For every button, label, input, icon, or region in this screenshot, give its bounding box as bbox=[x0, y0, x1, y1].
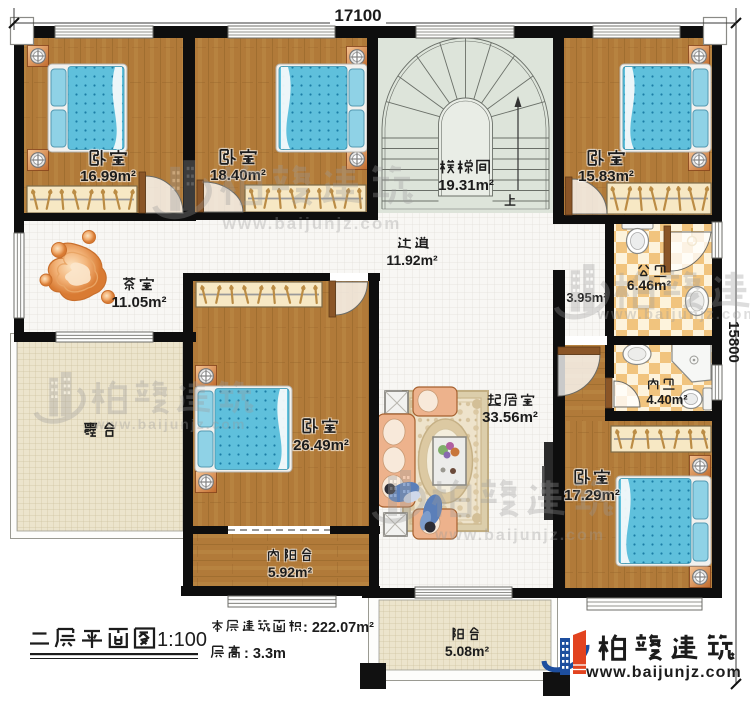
svg-text:4.40m²: 4.40m² bbox=[646, 392, 688, 407]
svg-text:15.83m²: 15.83m² bbox=[578, 168, 634, 185]
svg-text:15800: 15800 bbox=[725, 321, 742, 363]
svg-text:18.40m²: 18.40m² bbox=[210, 167, 266, 184]
svg-text:11.05m²: 11.05m² bbox=[111, 294, 166, 311]
svg-text:17100: 17100 bbox=[334, 6, 381, 25]
svg-text:17.29m²: 17.29m² bbox=[564, 487, 620, 504]
svg-text:: 3.3m: : 3.3m bbox=[244, 646, 286, 662]
svg-text:www.baijunjz.com: www.baijunjz.com bbox=[93, 416, 247, 432]
svg-text:5.08m²: 5.08m² bbox=[445, 643, 490, 659]
svg-text:www.baijunjz.com: www.baijunjz.com bbox=[585, 664, 742, 681]
svg-text:www.baijunjz.com: www.baijunjz.com bbox=[222, 214, 402, 233]
svg-text:26.49m²: 26.49m² bbox=[293, 437, 349, 454]
svg-text:19.31m²: 19.31m² bbox=[438, 177, 494, 194]
svg-text:: 222.07m²: : 222.07m² bbox=[303, 620, 374, 636]
svg-text:16.99m²: 16.99m² bbox=[80, 168, 136, 185]
svg-text:33.56m²: 33.56m² bbox=[482, 409, 538, 426]
svg-text:11.92m²: 11.92m² bbox=[386, 252, 438, 268]
svg-text:www.baijunjz.com: www.baijunjz.com bbox=[434, 527, 605, 544]
svg-text:www.baijunjz.com: www.baijunjz.com bbox=[596, 306, 750, 323]
svg-text:1:100: 1:100 bbox=[157, 629, 207, 651]
svg-text:5.92m²: 5.92m² bbox=[268, 564, 313, 580]
